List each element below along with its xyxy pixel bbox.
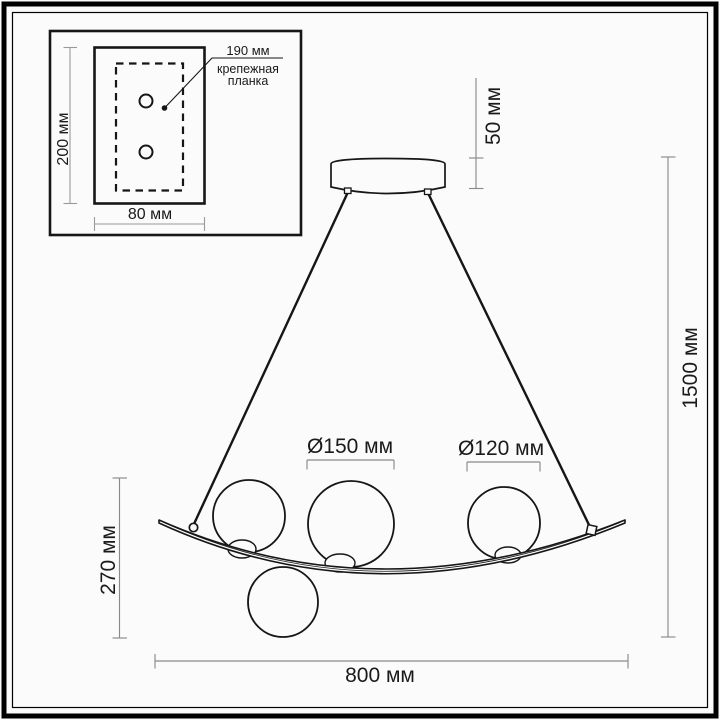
mounting-hole-bottom (140, 146, 153, 159)
lamp-dimension-diagram: 190 мм крепежная планка 200 мм 80 мм (0, 0, 720, 720)
total-height-label: 1500 мм (679, 327, 702, 408)
bracket-dashed-outline (116, 64, 183, 191)
fixture-width-label: 800 мм (345, 664, 415, 687)
mounting-hole-top (140, 95, 153, 108)
dim-total-height: 1500 мм (661, 157, 702, 637)
plate-width-label: 80 мм (128, 206, 172, 223)
plate-height-label: 200 мм (55, 112, 72, 165)
dim-plate-width: 80 мм (95, 206, 205, 231)
canopy-height-label: 50 мм (482, 87, 505, 145)
dim-canopy-height: 50 мм (469, 78, 505, 189)
dim-plate-height: 200 мм (55, 48, 77, 204)
canopy-wire-nub-right (425, 189, 432, 195)
wire-square-connector (586, 525, 597, 536)
dim-fixture-width: 800 мм (155, 654, 628, 687)
globe-small-diameter-label: Ø120 мм (458, 437, 544, 460)
fixture-height-label: 270 мм (97, 525, 120, 595)
dim-globe-large-diameter: Ø150 мм (307, 435, 394, 470)
pendant-lamp-drawing (159, 159, 625, 638)
dim-fixture-height: 270 мм (97, 478, 127, 638)
page-frame (4, 4, 716, 716)
suspension-wire-right (428, 193, 591, 529)
plate-outline (95, 48, 205, 204)
glass-globe-large (308, 481, 394, 567)
mounting-plate-inset: 190 мм крепежная планка 200 мм 80 мм (50, 31, 301, 235)
diagram-page: 190 мм крепежная планка 200 мм 80 мм (0, 0, 720, 720)
bracket-caption-line2: планка (228, 74, 269, 88)
bracket-length-label: 190 мм (226, 43, 269, 58)
frame-inner-border (13, 13, 708, 708)
suspension-wire-left (194, 192, 349, 525)
glass-globe-hanging (248, 567, 318, 637)
dim-globe-small-diameter: Ø120 мм (458, 437, 544, 472)
canopy-wire-nub-left (345, 188, 352, 194)
globe-large-diameter-label: Ø150 мм (307, 435, 393, 458)
wire-ring-connector (189, 523, 197, 531)
frame-outer-border (4, 4, 716, 716)
